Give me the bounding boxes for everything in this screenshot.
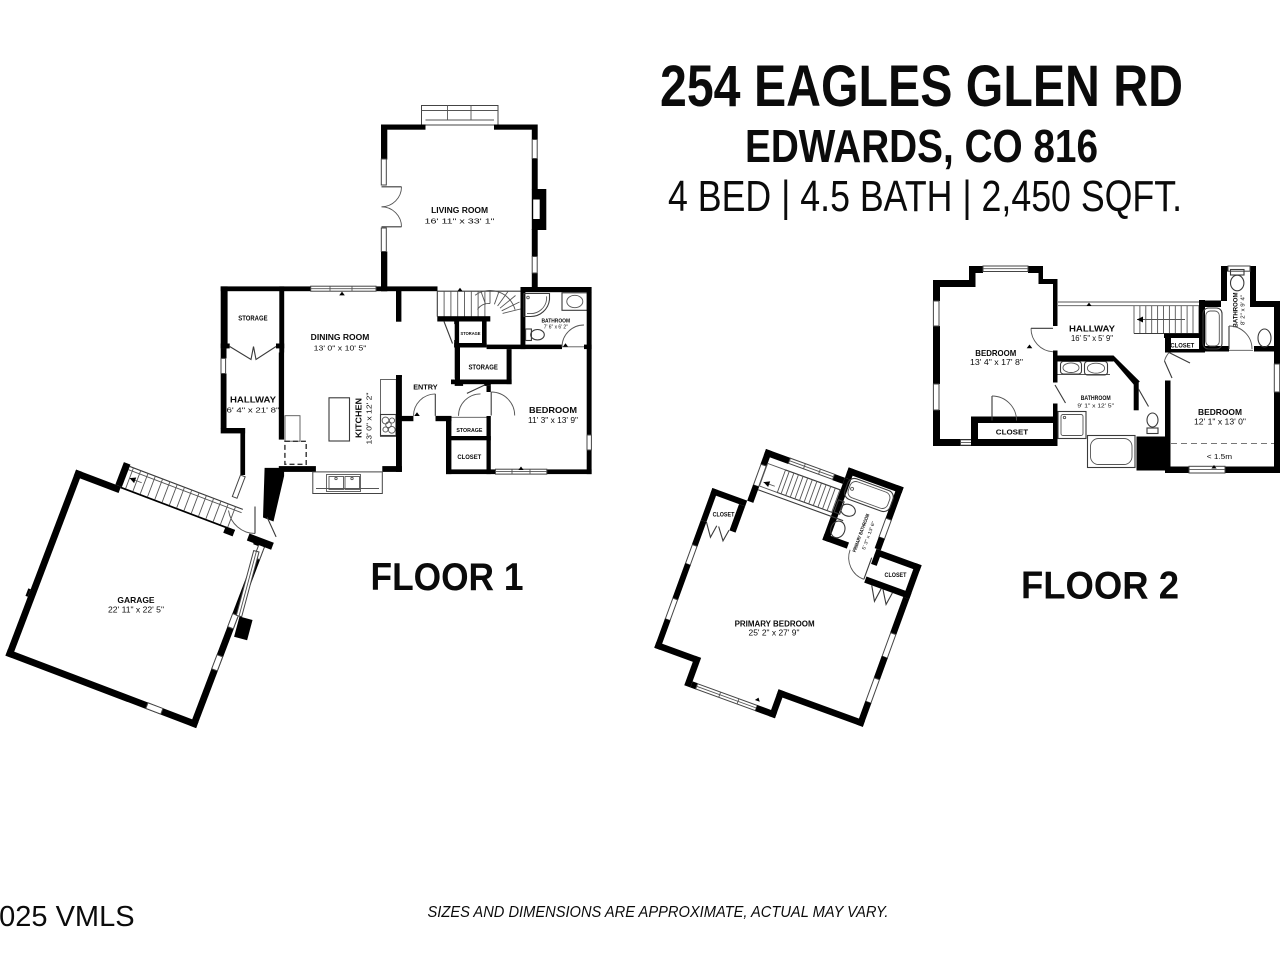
svg-text:CLOSET: CLOSET xyxy=(996,428,1029,437)
svg-text:BATHROOM: BATHROOM xyxy=(1234,293,1240,328)
svg-text:BEDROOM: BEDROOM xyxy=(1198,407,1242,417)
svg-text:LIVING ROOM: LIVING ROOM xyxy=(431,206,488,215)
svg-text:CLOSET: CLOSET xyxy=(1170,343,1194,349)
svg-text:16' 5" x 5' 9": 16' 5" x 5' 9" xyxy=(1071,334,1113,343)
svg-text:STORAGE: STORAGE xyxy=(238,315,268,322)
svg-text:11' 3" x 13' 9": 11' 3" x 13' 9" xyxy=(528,416,578,425)
svg-text:9' 1" x 12' 5": 9' 1" x 12' 5" xyxy=(1077,404,1114,410)
svg-text:GARAGE: GARAGE xyxy=(117,595,155,605)
svg-text:16' 11" x 33' 1": 16' 11" x 33' 1" xyxy=(425,217,495,226)
svg-text:STORAGE: STORAGE xyxy=(468,365,498,372)
svg-text:254 EAGLES GLEN RD: 254 EAGLES GLEN RD xyxy=(660,54,1183,119)
svg-text:PRIMARY BEDROOM: PRIMARY BEDROOM xyxy=(735,618,815,628)
svg-text:13' 0" x 10' 5": 13' 0" x 10' 5" xyxy=(314,344,367,353)
svg-text:7' 6" x 6' 2": 7' 6" x 6' 2" xyxy=(544,324,568,330)
svg-text:DINING ROOM: DINING ROOM xyxy=(311,333,370,342)
svg-text:BATHROOM: BATHROOM xyxy=(1081,395,1111,402)
svg-text:13' 4" x 17' 8": 13' 4" x 17' 8" xyxy=(970,358,1023,367)
svg-text:FLOOR 2: FLOOR 2 xyxy=(1021,565,1179,608)
svg-text:CLOSET: CLOSET xyxy=(713,513,735,519)
svg-text:BEDROOM: BEDROOM xyxy=(529,405,577,415)
svg-text:HALLWAY: HALLWAY xyxy=(1069,323,1115,333)
svg-text:EDWARDS, CO 816: EDWARDS, CO 816 xyxy=(745,120,1098,172)
svg-text:KITCHEN: KITCHEN xyxy=(355,398,364,438)
svg-text:25' 2" x 27' 9": 25' 2" x 27' 9" xyxy=(749,629,800,638)
svg-text:CLOSET: CLOSET xyxy=(885,573,907,579)
svg-text:6' 4" x 21' 8": 6' 4" x 21' 8" xyxy=(227,406,280,415)
svg-text:22' 11" x 22' 5": 22' 11" x 22' 5" xyxy=(108,605,164,614)
svg-text:2025 VMLS: 2025 VMLS xyxy=(0,901,135,933)
svg-text:13' 0" x 12' 2": 13' 0" x 12' 2" xyxy=(365,392,374,444)
svg-text:4 BED | 4.5 BATH | 2,450 SQFT.: 4 BED | 4.5 BATH | 2,450 SQFT. xyxy=(668,172,1182,221)
svg-text:FLOOR 1: FLOOR 1 xyxy=(371,556,524,599)
svg-text:< 1.5m: < 1.5m xyxy=(1207,454,1232,461)
svg-text:STORAGE: STORAGE xyxy=(461,331,481,336)
svg-text:CLOSET: CLOSET xyxy=(457,455,481,461)
svg-text:HALLWAY: HALLWAY xyxy=(230,395,277,404)
svg-text:8' 2" x 9' 4": 8' 2" x 9' 4" xyxy=(1241,295,1247,325)
svg-text:STORAGE: STORAGE xyxy=(456,428,482,434)
svg-text:12' 1" x 13' 0": 12' 1" x 13' 0" xyxy=(1194,417,1246,426)
svg-text:SIZES AND DIMENSIONS ARE APPRO: SIZES AND DIMENSIONS ARE APPROXIMATE, AC… xyxy=(428,904,889,921)
svg-text:BEDROOM: BEDROOM xyxy=(975,348,1016,358)
svg-text:ENTRY: ENTRY xyxy=(413,383,437,392)
